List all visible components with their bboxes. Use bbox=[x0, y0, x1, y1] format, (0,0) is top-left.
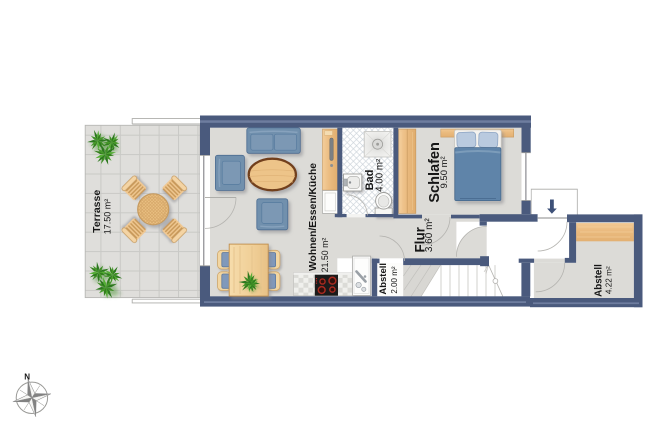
svg-text:17.50 m²: 17.50 m² bbox=[103, 199, 113, 235]
svg-text:9.50 m²: 9.50 m² bbox=[439, 156, 450, 188]
svg-text:4.00 m²: 4.00 m² bbox=[375, 158, 386, 192]
svg-text:Terrasse: Terrasse bbox=[91, 190, 103, 233]
svg-text:N: N bbox=[24, 373, 30, 382]
svg-text:Wohnen/Essen/Küche: Wohnen/Essen/Küche bbox=[308, 163, 319, 271]
svg-text:21.50 m²: 21.50 m² bbox=[320, 238, 330, 273]
svg-text:3.60 m²: 3.60 m² bbox=[424, 218, 435, 253]
svg-text:4.22 m²: 4.22 m² bbox=[605, 266, 614, 294]
svg-text:Abstell: Abstell bbox=[593, 264, 604, 297]
svg-text:2.00 m²: 2.00 m² bbox=[390, 266, 399, 293]
svg-text:Abstell: Abstell bbox=[378, 263, 389, 295]
